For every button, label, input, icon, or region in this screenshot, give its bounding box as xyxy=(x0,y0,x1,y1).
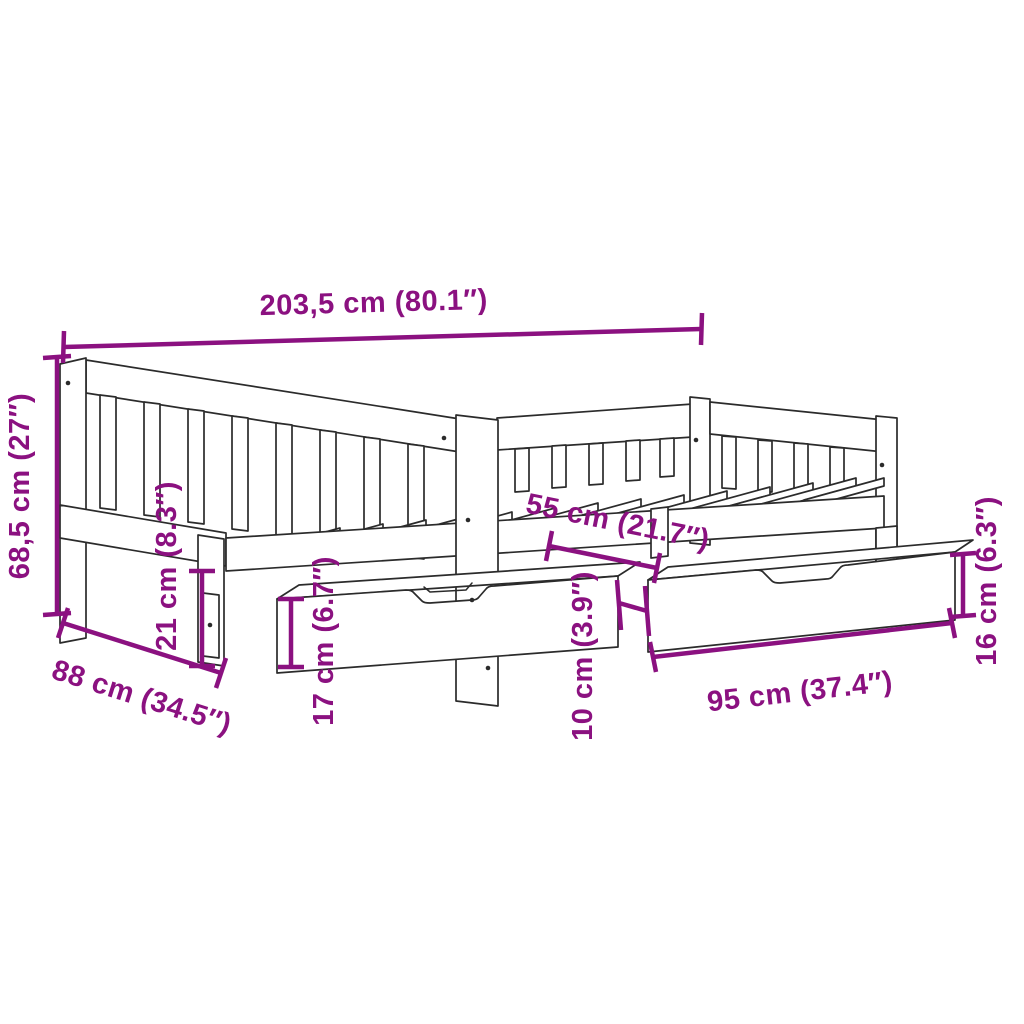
daybed-line-drawing: 203,5 cm (80.1″) 68,5 cm (27″) 88 cm (34… xyxy=(0,0,1024,1024)
drawer-front-height-label: 17 cm (6.7″) xyxy=(308,556,340,726)
dimension-overall-length: 203,5 cm (80.1″) xyxy=(63,284,702,363)
right-drawer xyxy=(648,540,973,652)
product-dimension-diagram: 203,5 cm (80.1″) 68,5 cm (27″) 88 cm (34… xyxy=(0,0,1024,1024)
drawer-width-label: 95 cm (37.4″) xyxy=(706,666,895,719)
headboard-right-post xyxy=(456,415,498,706)
overall-height-label: 68,5 cm (27″) xyxy=(4,393,36,579)
drawer-side-height-label: 16 cm (6.3″) xyxy=(971,496,1003,666)
drawer-gap-label: 10 cm (3.9″) xyxy=(567,571,599,741)
overall-length-label: 203,5 cm (80.1″) xyxy=(259,284,488,322)
dimension-drawer-side-height: 16 cm (6.3″) xyxy=(950,496,1003,666)
underbed-clearance-label: 21 cm (8.3″) xyxy=(151,481,183,651)
backrest-panel xyxy=(497,404,693,492)
